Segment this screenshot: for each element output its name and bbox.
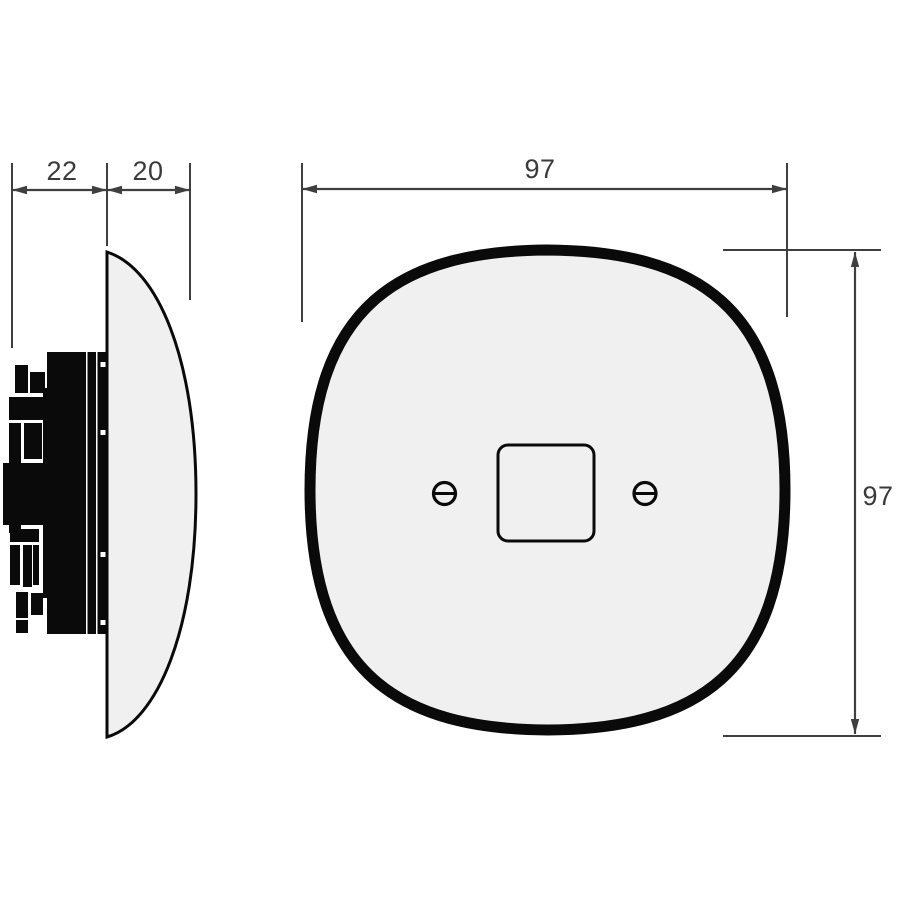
dimension-value-depth-plate: 20 xyxy=(123,158,173,185)
side-view xyxy=(3,252,196,737)
drawing-canvas xyxy=(0,0,900,900)
mechanism-yoke-plate-outer xyxy=(88,352,97,634)
front-view xyxy=(310,250,785,730)
mechanism-terminal-top-a xyxy=(15,365,28,393)
arrowhead-left xyxy=(12,186,27,194)
dimension-value-front-width: 97 xyxy=(515,156,565,183)
mechanism-lower-bar-left xyxy=(10,545,20,585)
arrowhead-right xyxy=(772,185,787,193)
arrowhead-right xyxy=(92,186,107,194)
mechanism-upper-slab xyxy=(9,397,43,420)
mechanism-terminal-bottom-b xyxy=(31,593,43,615)
front-plate xyxy=(310,250,785,730)
arrowhead-left xyxy=(302,185,317,193)
mechanism-terminal-bottom-a xyxy=(16,592,28,618)
mechanism-lower-bar-mid xyxy=(23,545,32,587)
arrowhead-left xyxy=(107,186,122,194)
mechanism-lower-bar-right xyxy=(33,545,39,585)
mechanism-yoke-plate-inner xyxy=(98,352,107,634)
dimension-value-front-height: 97 xyxy=(856,483,900,510)
mechanism-lower-slab xyxy=(10,529,39,542)
mechanism-terminal-bottom-c xyxy=(16,620,28,633)
mechanism-upper-bar-mid xyxy=(24,423,42,459)
arrowhead-down xyxy=(851,719,859,734)
arrowhead-right xyxy=(175,186,190,194)
dimension-value-depth-back: 22 xyxy=(37,158,87,185)
mechanism-middle-block xyxy=(3,463,73,525)
arrowhead-up xyxy=(851,252,859,267)
mechanism-terminal-top-b xyxy=(30,372,45,393)
switch-mechanism-silhouette xyxy=(3,352,108,634)
side-view-plate-dome xyxy=(107,252,196,737)
technical-drawing: 22 20 97 97 xyxy=(0,0,900,900)
